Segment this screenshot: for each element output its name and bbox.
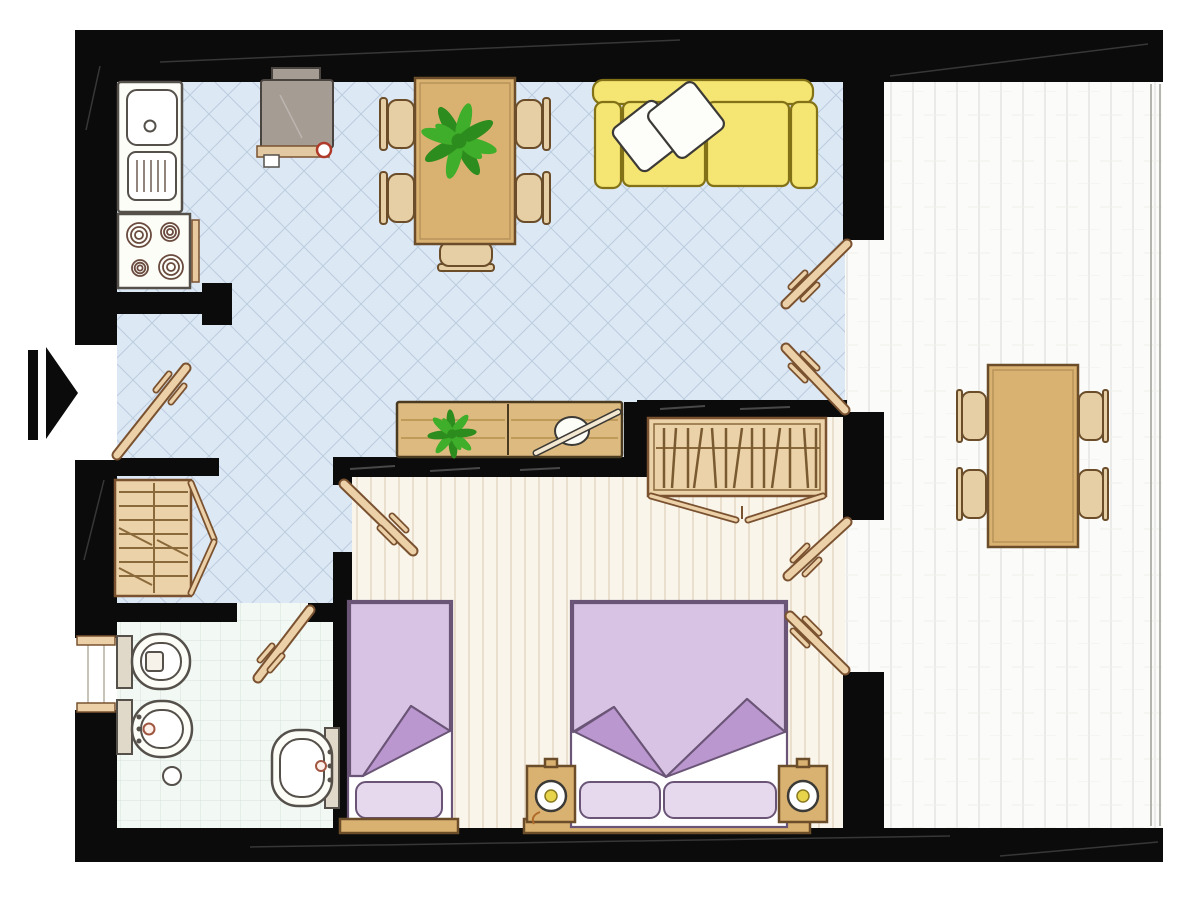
dining-chair-back <box>380 98 387 150</box>
single-bed <box>340 601 458 833</box>
basin-faucet <box>316 761 326 771</box>
apartment-floor-plan <box>0 0 1200 900</box>
toilet <box>117 634 190 689</box>
nightstand-knob <box>545 759 557 767</box>
window-frame-top <box>77 636 115 645</box>
toilet-opening <box>146 652 163 671</box>
bidet-base <box>117 700 132 754</box>
table-lamp-bulb <box>545 790 557 802</box>
dish-drainer <box>128 152 176 200</box>
tv-cable-roll <box>317 143 331 157</box>
sofa-armrest-left <box>595 102 621 188</box>
nightstand-left <box>527 759 575 824</box>
nightstand-knob <box>797 759 809 767</box>
toilet-tank <box>117 636 132 688</box>
sink-drain <box>145 121 156 132</box>
window-frame-bottom <box>77 703 115 712</box>
dining-chair-back <box>380 172 387 224</box>
wall-bathroom-top <box>115 603 237 622</box>
bathroom-window <box>75 636 117 712</box>
dining-chair-back <box>543 98 550 150</box>
wall-left-lower <box>75 710 117 830</box>
wall-terrace-lower <box>843 672 884 830</box>
double-bed-pillow-left <box>580 782 660 818</box>
wall-hallway-closet <box>115 458 219 476</box>
dining-chair <box>388 100 414 148</box>
dining-chair <box>388 174 414 222</box>
outdoor-chair <box>1079 470 1103 518</box>
wall-left-upper <box>75 82 117 345</box>
outdoor-chair <box>962 392 986 440</box>
dining-chair-back <box>543 172 550 224</box>
table-lamp-bulb <box>797 790 809 802</box>
dining-chair <box>440 242 492 266</box>
bidet <box>117 700 192 757</box>
washbasin <box>272 728 339 808</box>
floor-plan-canvas <box>0 0 1200 900</box>
dining-chair <box>516 100 542 148</box>
floor-drain <box>163 767 181 785</box>
oven-handle <box>192 220 199 282</box>
double-bed-pillow-right <box>664 782 776 818</box>
outdoor-chair <box>1079 392 1103 440</box>
kitchen-sink-basin <box>127 90 177 145</box>
outdoor-table <box>988 365 1078 547</box>
dining-chair <box>516 174 542 222</box>
tv-body <box>261 80 333 148</box>
entrance-arrow-bar <box>28 350 38 440</box>
single-bed-headboard <box>340 819 458 833</box>
wall-kitchen <box>115 292 205 314</box>
wall-terrace-middle <box>843 412 884 520</box>
single-bed-pillow <box>356 782 442 818</box>
entrance-arrow-icon <box>46 347 78 439</box>
bidet-faucet <box>144 724 155 735</box>
outdoor-chair <box>962 470 986 518</box>
sofa-armrest-right <box>791 102 817 188</box>
tv-unit <box>257 68 333 167</box>
wall-left-middle <box>75 460 117 638</box>
window-opening <box>75 638 117 710</box>
tv-foot <box>264 155 279 167</box>
wall-kitchen-stub <box>202 283 232 325</box>
wall-terrace-upper <box>843 30 884 240</box>
nightstand-right <box>779 759 827 822</box>
sofa <box>593 79 817 188</box>
wall-top <box>75 30 1163 82</box>
entrance-opening <box>75 345 117 460</box>
